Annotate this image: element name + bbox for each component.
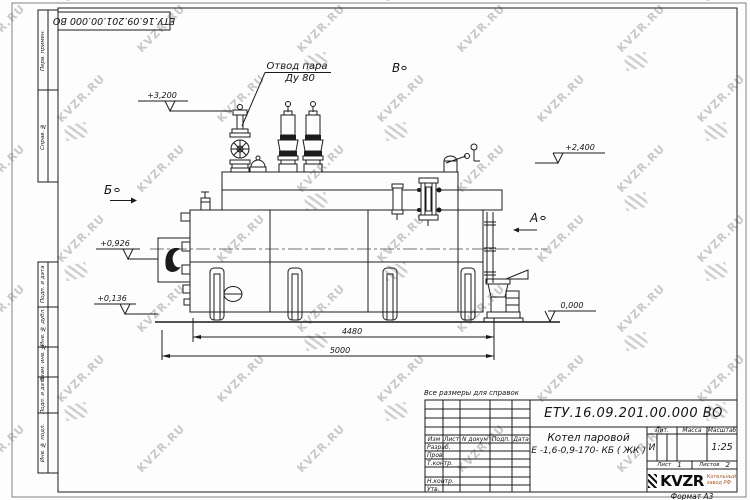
sheets-label: Листов [699, 462, 720, 468]
margin-inv-dubl: Инв. № дубл. [38, 307, 48, 347]
steam-outlet-dn: Ду 80 [284, 73, 315, 84]
col-izm: Изм [425, 435, 443, 443]
boiler-body [190, 210, 483, 312]
downcomer-pipe [484, 212, 496, 283]
row-utv: Утв. [427, 485, 460, 493]
view-label-a: А [529, 211, 538, 225]
level-gauge-1 [392, 184, 403, 220]
lever-valve [444, 144, 480, 172]
corner-stamp-doc-number: ЕТУ.16.09.201.00.000 ВО [58, 12, 170, 30]
manhole [224, 287, 242, 302]
dim-4480: 4480 [342, 327, 362, 336]
col-list: Лист [443, 435, 460, 443]
svg-text:+0,926: +0,926 [100, 239, 130, 248]
shelf-valve [201, 192, 210, 210]
boiler-side-view [150, 102, 560, 323]
margin-podp-data-2: Подп. и дата [38, 377, 48, 413]
kvzr-logo-subtext: Котельный завод РФ [707, 475, 736, 486]
titleblock-doc-number: ЕТУ.16.09.201.00.000 ВО [532, 401, 735, 426]
row-razrab: Разраб. [427, 443, 460, 451]
margin-sprav-no: Справ. № [38, 90, 48, 182]
sheets-total: Листов 2 [692, 461, 737, 469]
reference-note: Все размеры для справок [424, 388, 554, 397]
svg-text:+3,200: +3,200 [147, 91, 177, 100]
burner [158, 238, 190, 282]
product-model: Е -1,6-0,9-170- КБ ( ЖК ) [531, 444, 646, 457]
steam-outlet-label: Отвод пара [267, 61, 328, 72]
dim-5000: 5000 [330, 346, 350, 355]
svg-text:+0,136: +0,136 [97, 294, 127, 303]
safety-valve-2 [303, 102, 323, 173]
dimensions: 4480 5000 [162, 318, 494, 360]
dome-fitting [250, 156, 266, 172]
margin-perv-primen: Перв. примен. [38, 10, 48, 90]
col-ndokum: N докум [460, 435, 490, 443]
drawing-sheet: KVZR.RUKVZR.RUKVZR.RUKVZR.RUKVZR.RUKVZR.… [0, 0, 750, 500]
sheets-value: 2 [726, 461, 730, 469]
col-data: Дата [512, 435, 530, 443]
view-label-b: Б [104, 183, 112, 197]
company-logo: KVZR Котельный завод РФ [648, 469, 736, 492]
elevation-3200: +3,200 [138, 91, 232, 111]
svg-text:0,000: 0,000 [561, 301, 584, 310]
lit-label: Лит. [647, 427, 677, 434]
lit-value: И [647, 434, 657, 461]
massa-label: Масса [677, 427, 707, 434]
margin-podp-data-1: Подп. и дата [38, 262, 48, 307]
sheet-number: Лист 1 [647, 461, 692, 469]
format-label: Формат А3 [647, 492, 737, 500]
sheet-value: 1 [677, 461, 681, 469]
product-name: Котел паровой [531, 430, 646, 445]
safety-valve-1 [278, 102, 298, 173]
elevation-0000: 0,000 [545, 301, 596, 322]
col-podp: Подп. [490, 435, 512, 443]
elevation-2400: +2,400 [535, 143, 605, 163]
masshtab-label: Масштаб [707, 427, 737, 434]
row-prov: Пров. [427, 451, 460, 459]
margin-vzam-inv: Взам. инв. № [38, 347, 48, 377]
scale-value: 1:25 [707, 434, 737, 461]
drum-rear-step [458, 190, 502, 210]
kvzr-logo-icon [648, 474, 657, 488]
svg-text:+2,400: +2,400 [565, 143, 595, 152]
left-nozzles [181, 213, 190, 305]
row-nkontr: Н.контр. [427, 477, 460, 485]
elevation-0136: +0,136 [94, 294, 158, 314]
margin-inv-podl: Инв. № подл. [38, 413, 48, 473]
level-gauge-2 [417, 178, 442, 226]
row-tkontr: Т.контр. [427, 459, 460, 467]
sheet-label: Лист [657, 462, 671, 468]
elevation-0926: +0,926 [96, 239, 158, 259]
kvzr-logo-text: KVZR [660, 472, 704, 490]
view-label-v: В [392, 61, 400, 75]
feed-pump [484, 270, 528, 322]
